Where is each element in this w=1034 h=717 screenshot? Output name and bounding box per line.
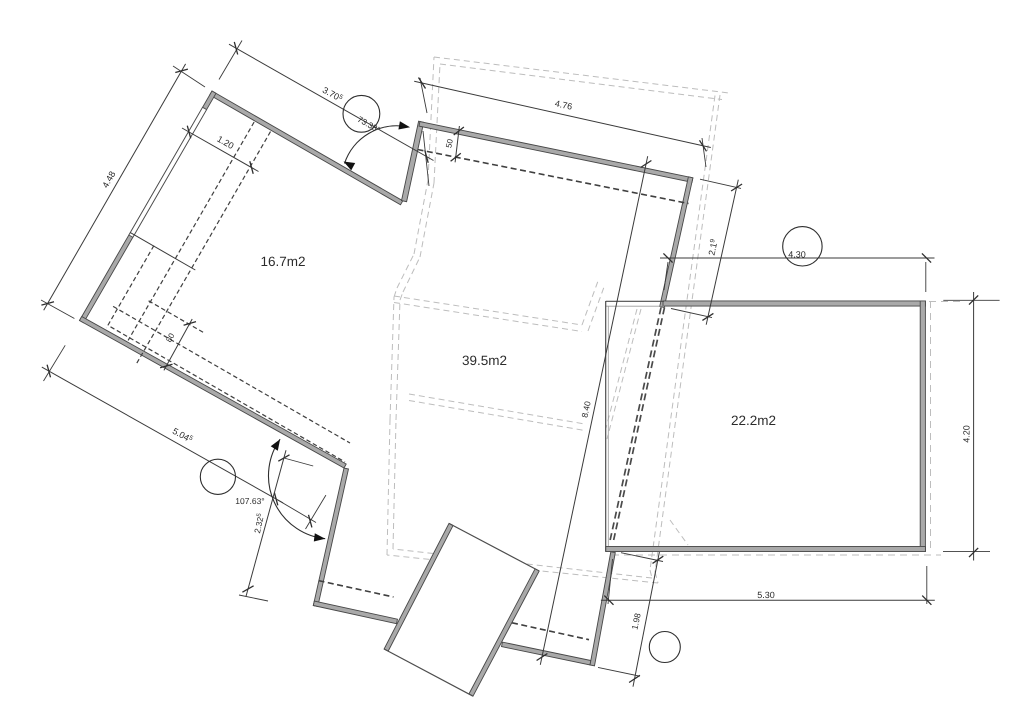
svg-text:4.20: 4.20: [962, 425, 972, 443]
svg-text:16.7m2: 16.7m2: [260, 254, 305, 269]
svg-text:2.19: 2.19: [706, 238, 719, 256]
svg-text:1.98: 1.98: [629, 612, 642, 631]
svg-text:8.40: 8.40: [579, 400, 592, 419]
svg-text:50: 50: [444, 138, 455, 149]
svg-text:3.705: 3.705: [321, 85, 345, 104]
svg-text:22.2m2: 22.2m2: [731, 413, 776, 428]
svg-text:5.30: 5.30: [757, 590, 775, 600]
svg-text:107.63°: 107.63°: [235, 496, 264, 506]
svg-text:4.76: 4.76: [554, 98, 573, 111]
svg-text:39.5m2: 39.5m2: [462, 353, 507, 368]
svg-text:4.30: 4.30: [788, 250, 806, 260]
